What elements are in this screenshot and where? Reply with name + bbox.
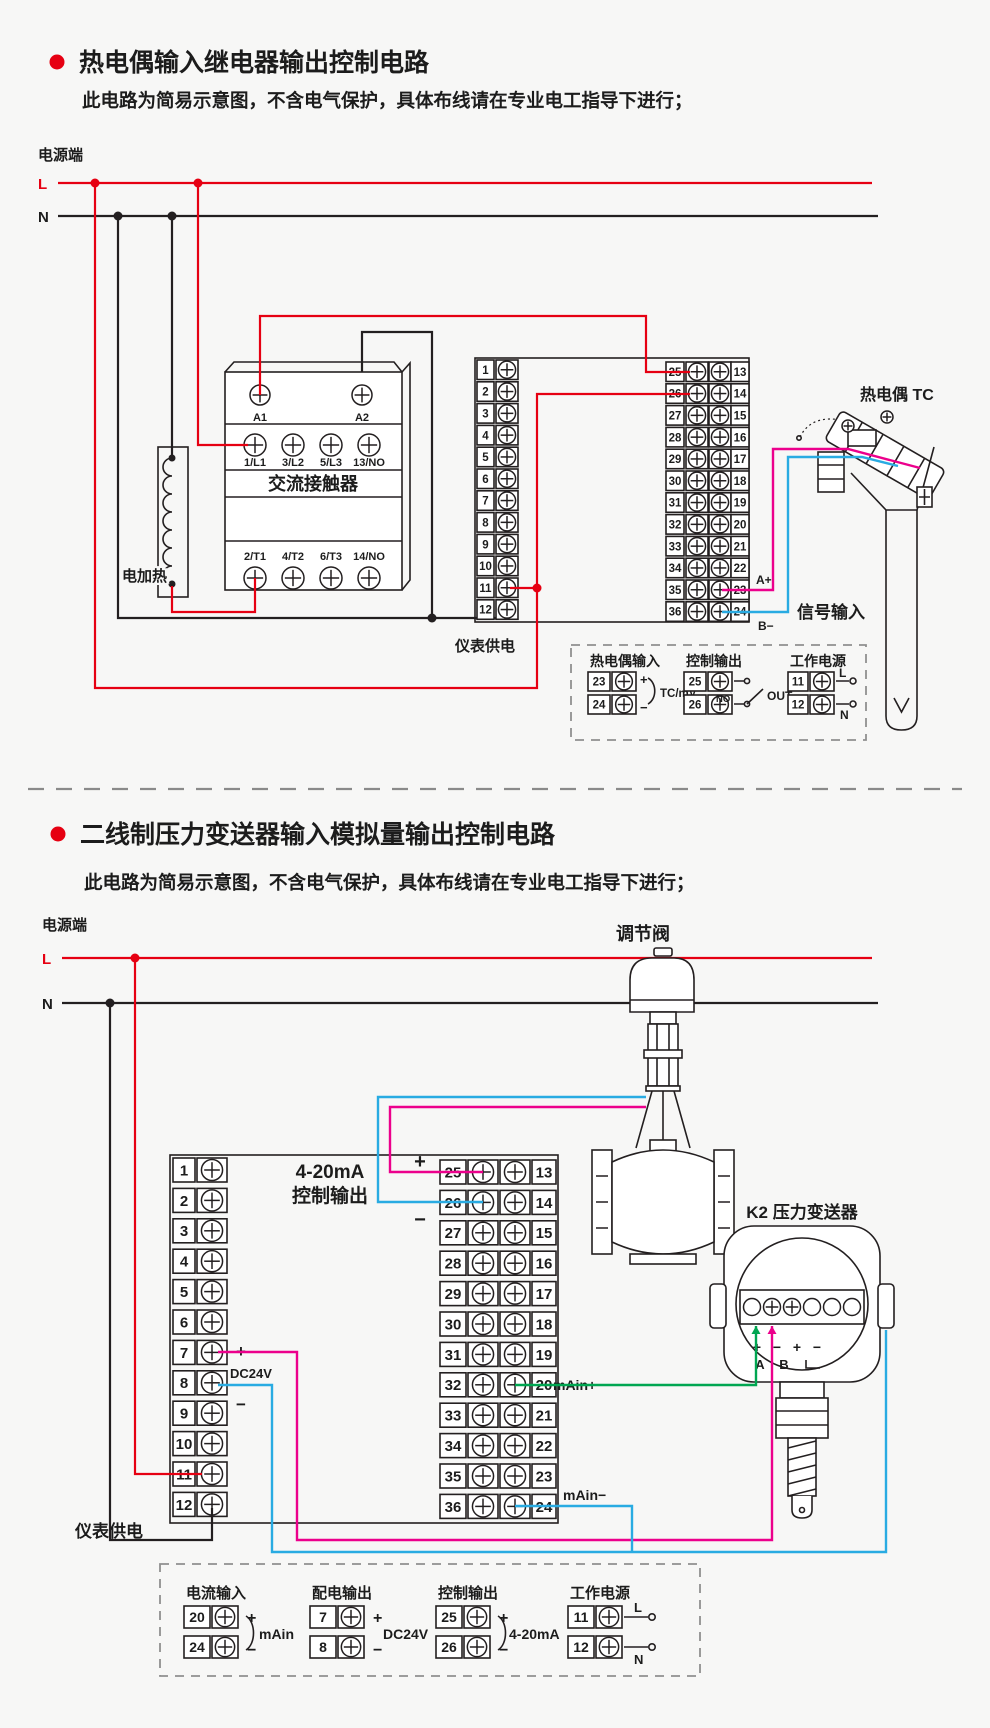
pressure-transmitter-drawing: K2 压力变送器 + − + − A B	[710, 1202, 894, 1518]
legend-bracket	[648, 678, 655, 704]
legend-current-title: 电流输入	[186, 1584, 246, 1602]
contact-label-1l1: 1/L1	[244, 457, 266, 469]
terminal-number: 20	[734, 519, 747, 531]
valve-label: 调节阀	[616, 923, 670, 944]
terminal-number: 10	[479, 561, 492, 573]
terminal-number: 11	[792, 677, 805, 689]
420ma-note: 4-20mA	[509, 1626, 560, 1642]
section1-thermocouple-relay-circuit: 热电偶输入继电器输出控制电路 此电路为简易示意图，不含电气保护，具体布线请在专业…	[38, 48, 945, 740]
terminal-number: 18	[536, 1316, 553, 1333]
terminal-column-right: 2513261427152816291730183119322033213422…	[666, 362, 749, 621]
valve-base	[630, 1254, 696, 1264]
wire-l-to-11	[135, 958, 202, 1474]
legend-control-title: 控制输出	[438, 1584, 498, 1602]
main-minus-label: mAin−	[563, 1487, 606, 1503]
coil-top-dot	[169, 455, 176, 462]
power-terminal-label: 电源端	[38, 146, 83, 164]
terminal-number: 12	[479, 605, 492, 617]
terminal-number: 16	[536, 1256, 553, 1273]
contact-label-6t3: 6/T3	[320, 551, 342, 563]
line-l-label: L	[38, 176, 47, 193]
terminal-number: 6	[180, 1314, 188, 1331]
switch-contact	[744, 678, 749, 683]
terminal-number: 2	[482, 387, 488, 399]
terminal-number: 35	[669, 585, 682, 597]
terminal-number: 7	[319, 1609, 327, 1625]
n-mark: N	[840, 708, 849, 722]
terminal-number: 18	[734, 476, 747, 488]
tx-hex	[776, 1398, 828, 1438]
terminal-number: 34	[669, 563, 682, 575]
terminal-number: 29	[669, 454, 682, 466]
terminal-column-left: 123456789101112	[477, 360, 518, 619]
contact-label-3l2: 3/L2	[282, 457, 304, 469]
junction-dot	[194, 179, 203, 188]
valve-collar	[644, 1050, 682, 1058]
wiring-diagram-page: 热电偶输入继电器输出控制电路 此电路为简易示意图，不含电气保护，具体布线请在专业…	[0, 0, 990, 1728]
terminal-number: 8	[319, 1639, 327, 1655]
terminal-number: 30	[445, 1316, 462, 1333]
no-label: NO	[716, 694, 730, 705]
section2-title: 二线制压力变送器输入模拟量输出控制电路	[80, 820, 556, 849]
section2-pressure-transmitter-circuit: 二线制压力变送器输入模拟量输出控制电路 此电路为简易示意图，不含电气保护，具体布…	[42, 820, 894, 1676]
diagram-canvas: 热电偶输入继电器输出控制电路 此电路为简易示意图，不含电气保护，具体布线请在专业…	[0, 0, 990, 1728]
terminal-circle	[850, 701, 856, 707]
legend-supply-title: 配电输出	[312, 1584, 372, 1602]
terminal-number: 21	[734, 541, 747, 553]
legend-power-terminals: 1112	[568, 1606, 622, 1658]
terminal-number: 20	[189, 1609, 205, 1625]
terminal-number: 22	[536, 1438, 553, 1455]
terminal-number: 33	[669, 541, 682, 553]
terminal-number: 5	[180, 1284, 188, 1301]
contact-label-2t1: 2/T1	[244, 551, 266, 563]
terminal-number: 16	[734, 432, 747, 444]
tx-minus2: −	[813, 1339, 821, 1355]
out-minus: −	[414, 1209, 426, 1231]
terminal-number: 27	[445, 1225, 462, 1242]
terminal-number: 26	[689, 700, 702, 712]
valve-body	[612, 1150, 714, 1254]
terminal-number: 26	[441, 1639, 457, 1655]
out-label-1: 4-20mA	[296, 1162, 365, 1183]
dc24v-label: DC24V	[230, 1366, 272, 1381]
junction-dot	[533, 584, 542, 593]
terminal-number: 22	[734, 563, 747, 575]
yoke-bar	[646, 1086, 680, 1091]
terminal-number: 11	[574, 1609, 589, 1625]
terminal-number: 35	[445, 1468, 462, 1485]
tc-probe	[886, 510, 917, 730]
tc-label: 热电偶 TC	[860, 385, 934, 404]
terminal-number: 23	[593, 677, 606, 689]
valve-knob	[654, 948, 672, 956]
section1-subtitle: 此电路为简易示意图，不含电气保护，具体布线请在专业电工指导下进行；	[82, 90, 693, 111]
terminal-number: 8	[482, 517, 489, 529]
terminal-number: 1	[482, 365, 489, 377]
terminal-number: 15	[734, 410, 747, 422]
terminal-number: 24	[189, 1639, 205, 1655]
terminal-number: 7	[482, 496, 488, 508]
power-terminal-label: 电源端	[42, 916, 87, 934]
bullet-icon	[51, 827, 66, 842]
coil-a1-label: A1	[253, 412, 267, 424]
legend-supply-terminals: 78	[310, 1606, 364, 1658]
terminal-number: 32	[445, 1377, 462, 1394]
cable-entry-left	[710, 1284, 726, 1328]
chain-end	[797, 436, 801, 440]
cable-entry-right	[878, 1284, 894, 1328]
terminal-number: 34	[445, 1438, 462, 1455]
terminal-number: 12	[792, 700, 805, 712]
tc-probe-v-mark	[894, 698, 909, 712]
terminal-number: 1	[180, 1162, 188, 1179]
heater-coil	[163, 458, 172, 584]
b-minus-label: B−	[758, 619, 774, 633]
meter-power-label: 仪表供电	[74, 1521, 143, 1541]
minus-mark: −	[640, 700, 648, 715]
transmitter-label: K2 压力变送器	[746, 1202, 858, 1222]
meter-power-label: 仪表供电	[454, 637, 515, 655]
terminal-number: 9	[180, 1406, 188, 1423]
legend-box-2: 电流输入 2024 + − mAin 配电输出 78 + − DC24V 控制输…	[160, 1564, 700, 1676]
terminal-number: 4	[482, 430, 489, 442]
terminal-number: 24	[536, 1499, 553, 1516]
terminal-number: 32	[669, 519, 682, 531]
signal-input-label: 信号输入	[797, 602, 865, 622]
terminal-column-right: 2513261427152816291730183119322033213422…	[440, 1160, 556, 1518]
control-valve-drawing: 调节阀	[592, 923, 734, 1264]
terminal-number: 17	[536, 1286, 553, 1303]
terminal-number: 17	[734, 454, 747, 466]
l-mark: L	[839, 666, 846, 680]
n-mark: N	[634, 1652, 643, 1667]
terminal-number: 13	[734, 367, 747, 379]
legend-power-lines	[836, 681, 849, 704]
terminal-number: 23	[536, 1468, 553, 1485]
terminal-number: 31	[445, 1347, 462, 1364]
terminal-number: 4	[180, 1254, 189, 1271]
terminal-number: 3	[180, 1223, 188, 1240]
contact-label-14no: 14/NO	[353, 551, 385, 563]
terminal-number: 19	[536, 1347, 553, 1364]
terminal-number: 14	[734, 389, 747, 401]
contact-label-4t2: 4/T2	[282, 551, 304, 563]
tx-neck	[780, 1382, 824, 1398]
terminal-number: 28	[669, 432, 682, 444]
dc-minus: −	[236, 1395, 246, 1414]
terminal-number: 12	[176, 1497, 193, 1514]
terminal-number: 7	[180, 1345, 188, 1362]
section2-subtitle: 此电路为简易示意图，不含电气保护，具体布线请在专业电工指导下进行；	[84, 872, 695, 893]
legend-power-terminals: 1112	[788, 672, 834, 714]
terminal-number: 21	[536, 1408, 553, 1425]
terminal-number: 15	[536, 1225, 553, 1242]
tc-junction-box	[848, 430, 876, 446]
tx-b-label: B	[779, 1357, 788, 1372]
terminal-circle	[649, 1614, 655, 1620]
terminal-number: 36	[669, 607, 682, 619]
coil-a2-label: A2	[355, 412, 369, 424]
terminal-number: 28	[445, 1256, 462, 1273]
plus-mark: +	[640, 672, 648, 687]
legend-input-title: 热电偶输入	[590, 653, 660, 669]
contact-label-13no: 13/NO	[353, 457, 385, 469]
l-mark: L	[634, 1600, 642, 1615]
valve-actuator	[630, 958, 694, 1012]
valve-neck	[650, 1012, 676, 1024]
terminal-number: 26	[445, 1195, 462, 1212]
heater-label: 电加热	[122, 567, 167, 585]
tx-plus2: +	[793, 1339, 801, 1355]
legend-input-terminals: 2324	[588, 672, 636, 714]
junction-dot	[91, 179, 100, 188]
junction-dot	[168, 212, 177, 221]
contactor-name: 交流接触器	[268, 473, 359, 494]
terminal-number: 30	[669, 476, 682, 488]
terminal-number: 12	[573, 1639, 589, 1655]
terminal-number: 13	[536, 1164, 553, 1181]
terminal-number: 24	[593, 700, 606, 712]
contact-label-5l3: 5/L3	[320, 457, 342, 469]
terminal-column-left: 123456789101112	[173, 1158, 227, 1516]
legend-control-terminals: 2526	[436, 1606, 490, 1658]
minus-mark: −	[373, 1642, 382, 1659]
main-note: mAin	[259, 1626, 294, 1642]
line-n-label: N	[42, 996, 53, 1013]
legend-power-lines	[624, 1617, 648, 1647]
legend-power-title: 工作电源	[570, 1584, 630, 1602]
terminal-number: 9	[482, 539, 488, 551]
terminal-number: 14	[536, 1195, 553, 1212]
terminal-number: 29	[445, 1286, 462, 1303]
terminal-number: 36	[445, 1499, 462, 1516]
junction-dot	[114, 212, 123, 221]
terminal-number: 27	[669, 410, 682, 422]
terminal-circle	[649, 1644, 655, 1650]
terminal-number: 3	[482, 408, 488, 420]
junction-dot	[428, 614, 437, 623]
terminal-circle	[850, 678, 856, 684]
no-switch	[734, 681, 763, 704]
terminal-number: 31	[669, 498, 682, 510]
legend-current-terminals: 2024	[184, 1606, 238, 1658]
bullet-icon	[50, 55, 65, 70]
terminal-number: 25	[441, 1609, 457, 1625]
line-n-label: N	[38, 209, 49, 226]
terminal-number: 19	[734, 498, 747, 510]
dc24v-note: DC24V	[383, 1626, 429, 1642]
tx-minus1: −	[773, 1339, 781, 1355]
legend-output-title: 控制输出	[686, 653, 742, 669]
legend-power-title: 工作电源	[790, 653, 846, 669]
terminal-number: 10	[176, 1436, 193, 1453]
out-plus: +	[414, 1151, 426, 1173]
terminal-number: 33	[445, 1408, 462, 1425]
terminal-number: 6	[482, 474, 488, 486]
legend-box-1: 热电偶输入 2324 + − TC/mV 控制输出 2526 NO OUT 工作…	[571, 645, 866, 740]
terminal-number: 5	[482, 452, 489, 464]
a-plus-label: A+	[756, 573, 772, 587]
terminal-number: 2	[180, 1193, 188, 1210]
line-l-label: L	[42, 951, 51, 968]
section1-title: 热电偶输入继电器输出控制电路	[79, 48, 430, 77]
plus-mark: +	[373, 1610, 382, 1627]
out-label-2: 控制输出	[292, 1184, 368, 1207]
terminal-number: 8	[180, 1375, 188, 1392]
terminal-number: 25	[689, 677, 702, 689]
terminal-number: 11	[479, 583, 492, 595]
